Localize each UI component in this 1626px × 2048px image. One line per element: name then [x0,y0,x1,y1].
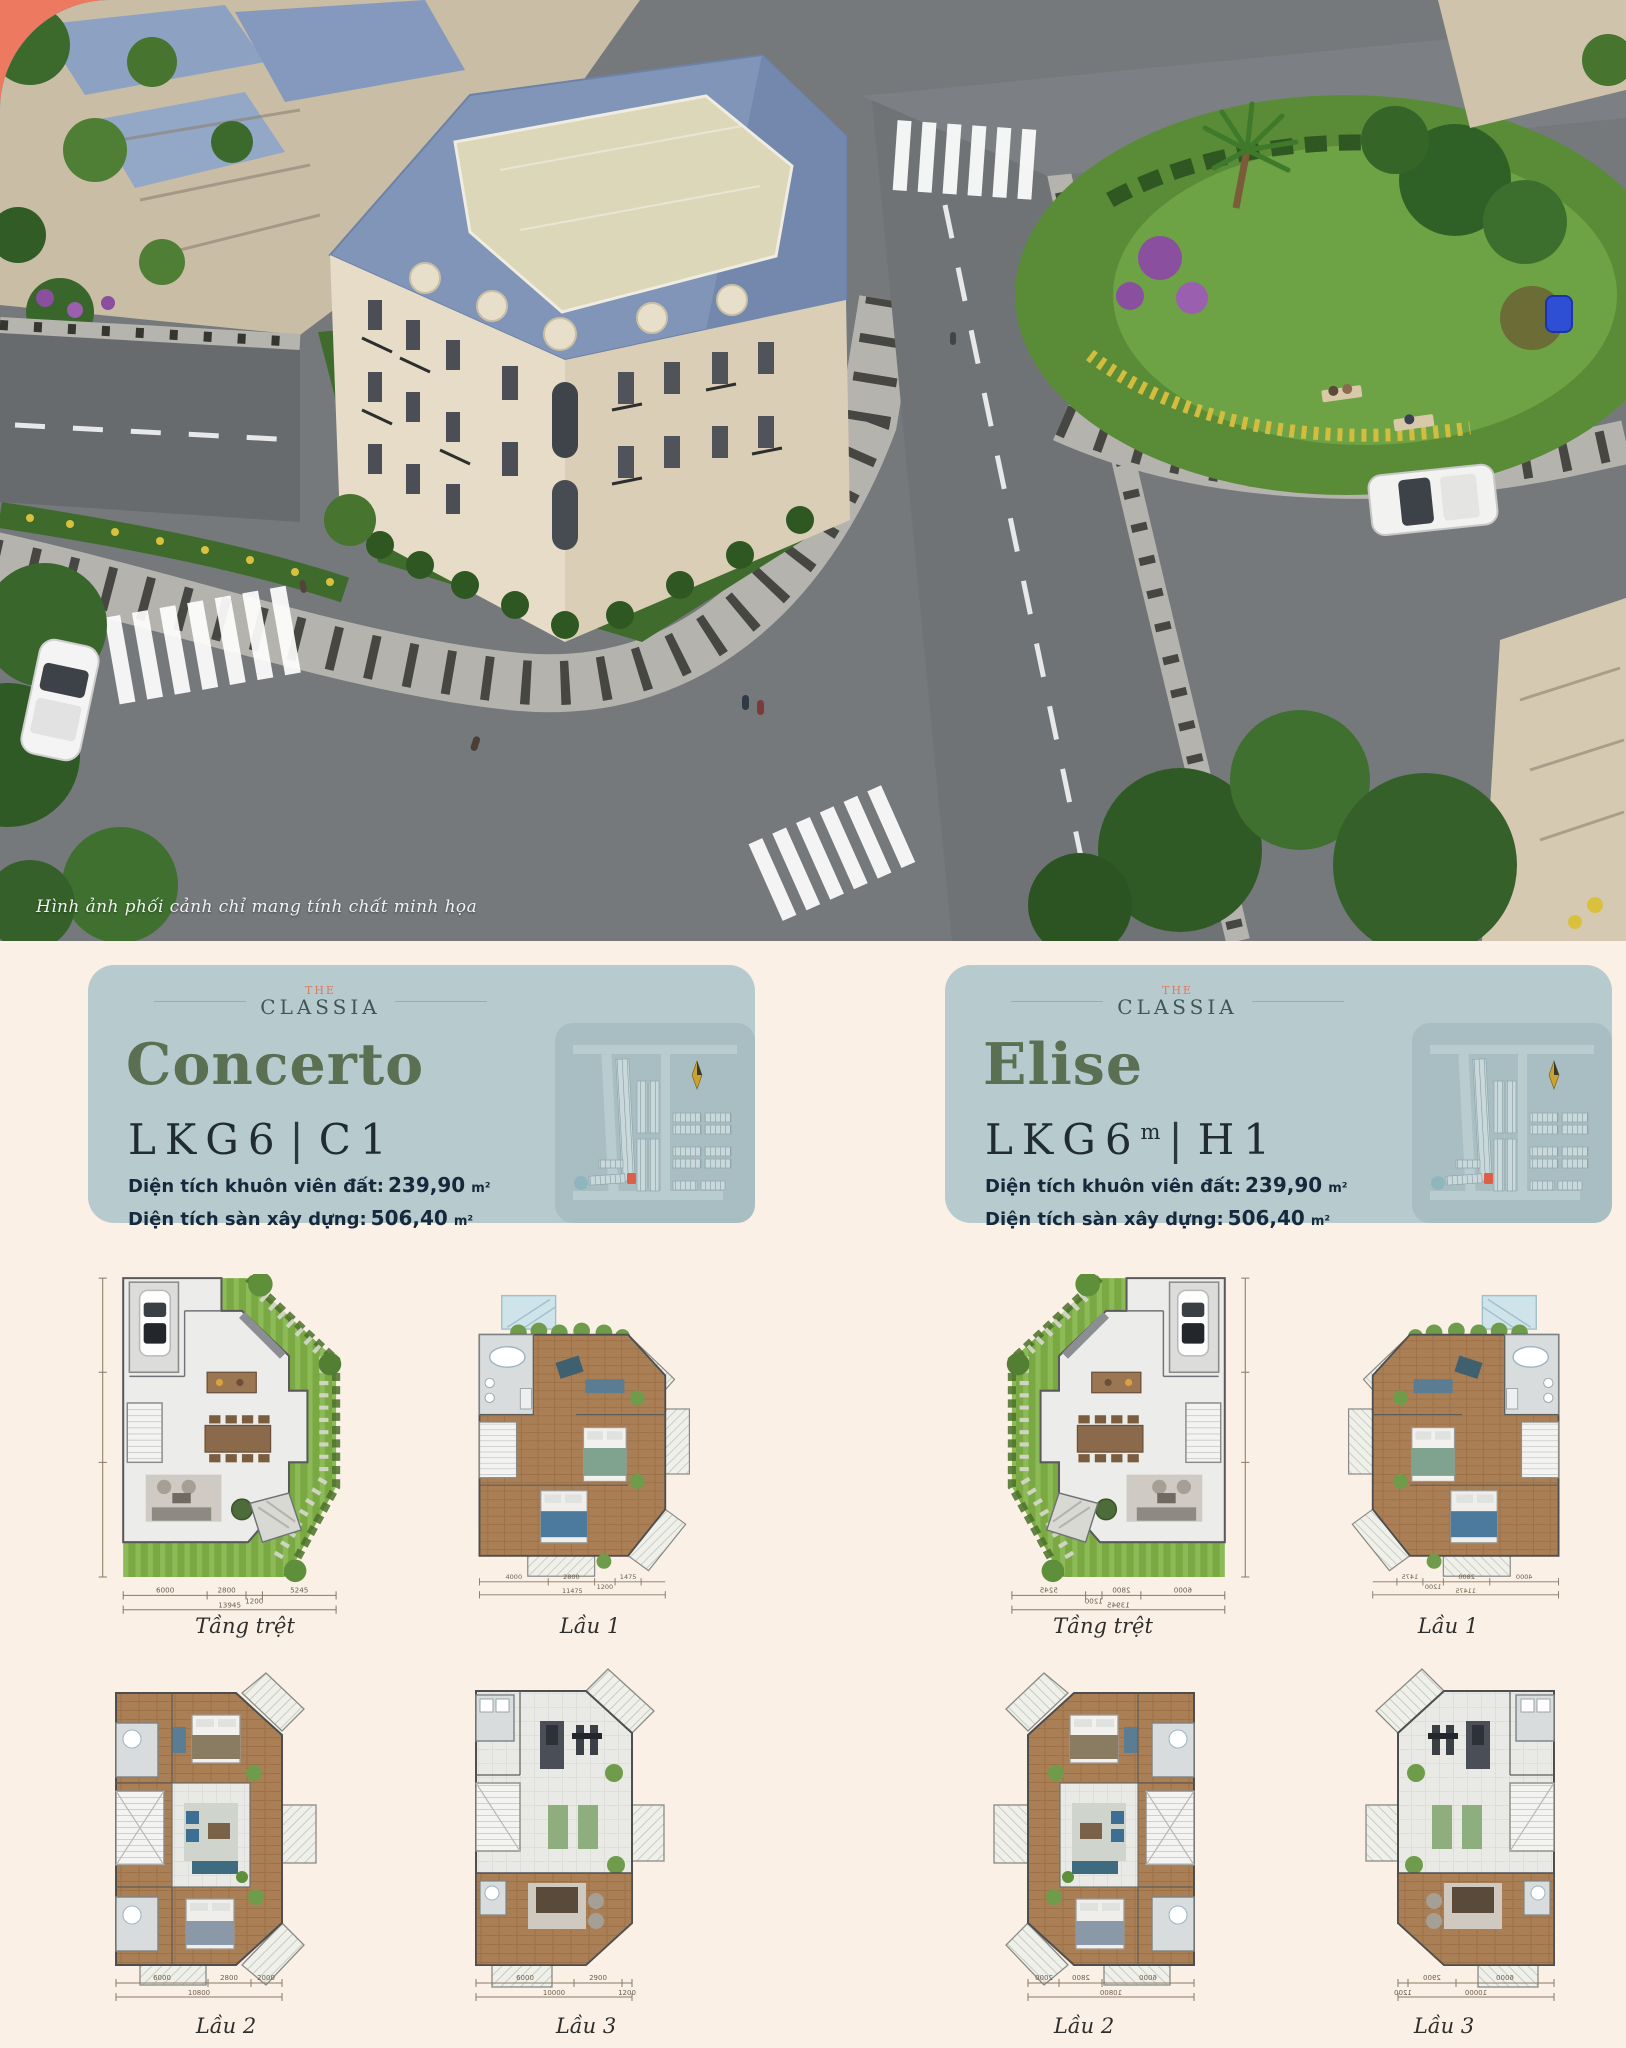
plan-label-level2: Lầu 2 [934,2014,1234,2038]
plan-label-level1: Lầu 1 [446,1614,734,1638]
floorplan-elise-level2 [934,1662,1234,2014]
villa-card-concerto: THE CLASSIA Concerto LKG6|C1 Diện tích k… [88,965,755,1223]
brand-logo: THE CLASSIA [945,985,1410,1017]
villa-specs: Diện tích khuôn viên đất:239,90m² Diện t… [128,1169,490,1235]
villa-code: LKG6|C1 [128,1115,396,1164]
block-code: LKG6 [128,1115,284,1164]
spec-land-area: Diện tích khuôn viên đất:239,90m² [985,1169,1347,1202]
villa-card-elise: THE CLASSIA Elise LKG6m|H1 Diện tích khu… [945,965,1612,1223]
masterplan-thumbnail [1412,1023,1612,1223]
plan-label-ground: Tầng trệt [86,1614,404,1638]
unit-code: C1 [319,1115,396,1164]
logo-rule-right [1252,1001,1344,1002]
villa-code: LKG6m|H1 [985,1115,1279,1164]
plan-label-level1: Lầu 1 [1304,1614,1592,1638]
masterplan-thumbnail [555,1023,755,1223]
floorplan-concerto-level3 [436,1662,736,2014]
spec-floor-area: Diện tích sàn xây dựng:506,40m² [128,1202,490,1235]
villa-specs: Diện tích khuôn viên đất:239,90m² Diện t… [985,1169,1347,1235]
brand-logo: THE CLASSIA [88,985,553,1017]
code-divider: | [1162,1115,1197,1164]
plan-label-level2: Lầu 2 [76,2014,376,2038]
logo-classia: CLASSIA [1117,997,1237,1017]
spec-floor-area: Diện tích sàn xây dựng:506,40m² [985,1202,1347,1235]
floorplan-elise-ground [944,1274,1262,1622]
logo-rule-right [395,1001,487,1002]
block-code-sup: m [1141,1120,1163,1144]
logo-classia: CLASSIA [260,997,380,1017]
aerial-scene-illustration [0,0,1626,941]
spec-land-area: Diện tích khuôn viên đất:239,90m² [128,1169,490,1202]
villa-title: Concerto [126,1031,424,1098]
plan-label-level3: Lầu 3 [1294,2014,1594,2038]
brochure-page: Hình ảnh phối cảnh chỉ mang tính chất mi… [0,0,1626,2048]
floorplan-elise-level1 [1304,1272,1592,1624]
villa-title: Elise [983,1031,1143,1098]
logo-rule-left [154,1001,246,1002]
hero-disclaimer-caption: Hình ảnh phối cảnh chỉ mang tính chất mi… [36,897,477,917]
floorplan-concerto-level2 [76,1662,376,2014]
floorplan-concerto-ground [86,1274,404,1622]
logo-rule-left [1011,1001,1103,1002]
floorplan-concerto-level1 [446,1272,734,1624]
block-code: LKG6 [985,1115,1141,1164]
unit-code: H1 [1198,1115,1279,1164]
hero-aerial-rendering: Hình ảnh phối cảnh chỉ mang tính chất mi… [0,0,1626,941]
floorplan-elise-level3 [1294,1662,1594,2014]
plan-label-ground: Tầng trệt [944,1614,1262,1638]
plan-label-level3: Lầu 3 [436,2014,736,2038]
code-divider: | [284,1115,319,1164]
